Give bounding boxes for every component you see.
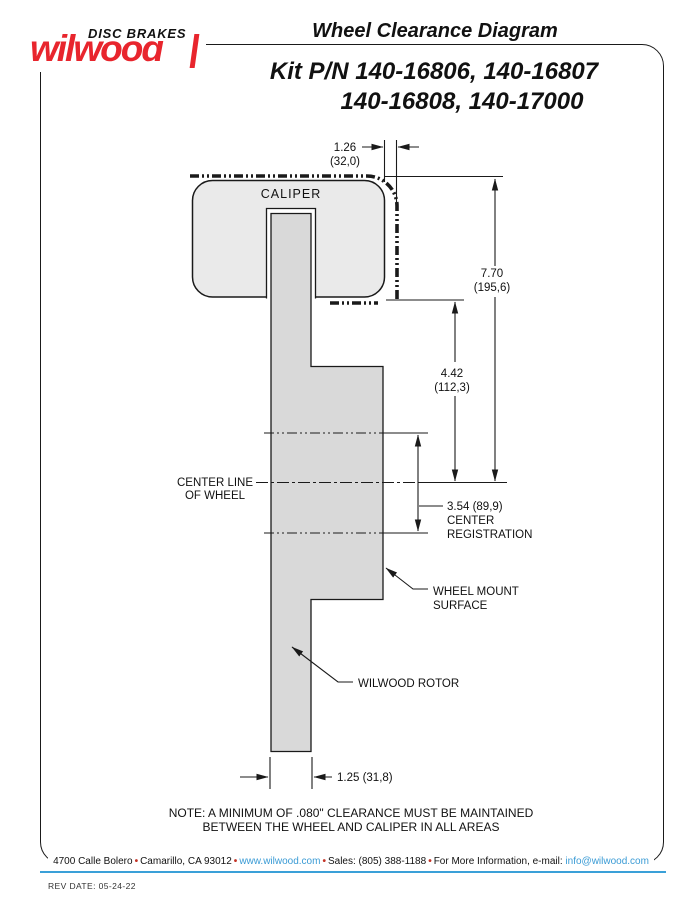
footer-website-link[interactable]: www.wilwood.com — [239, 856, 320, 867]
logo-flourish-bar — [190, 34, 200, 68]
page-title: Wheel Clearance Diagram — [212, 20, 658, 43]
footer-info-text: For More Information, e-mail: — [434, 856, 563, 867]
footer-address: 4700 Calle Bolero•Camarillo, CA 93012•ww… — [40, 855, 662, 869]
kit-part-numbers-line1: Kit P/N 140-16806, 140-16807 — [234, 58, 634, 86]
footer-bullet: • — [133, 856, 141, 867]
note-line2: BETWEEN THE WHEEL AND CALIPER IN ALL ARE… — [40, 820, 662, 834]
footer-sales-text: Sales: (805) 388-1188 — [328, 856, 426, 867]
footer-address-text: 4700 Calle Bolero — [53, 856, 133, 867]
footer-city-text: Camarillo, CA 93012 — [140, 856, 232, 867]
clearance-note: NOTE: A MINIMUM OF .080" CLEARANCE MUST … — [40, 806, 662, 834]
page: DISC BRAKES wilwood Wheel Clearance Diag… — [0, 0, 700, 906]
rev-date: REV DATE: 05-24-22 — [48, 881, 136, 891]
footer-email-link[interactable]: info@wilwood.com — [565, 856, 649, 867]
content-frame-border — [40, 44, 664, 864]
footer-blue-rule — [40, 871, 666, 873]
kit-part-numbers-line2: 140-16808, 140-17000 — [262, 88, 662, 116]
note-line1: NOTE: A MINIMUM OF .080" CLEARANCE MUST … — [40, 806, 662, 820]
footer-bullet: • — [320, 856, 328, 867]
footer-bullet: • — [426, 856, 434, 867]
logo-tagline: DISC BRAKES — [86, 26, 188, 41]
wilwood-logo: DISC BRAKES wilwood — [14, 12, 214, 68]
